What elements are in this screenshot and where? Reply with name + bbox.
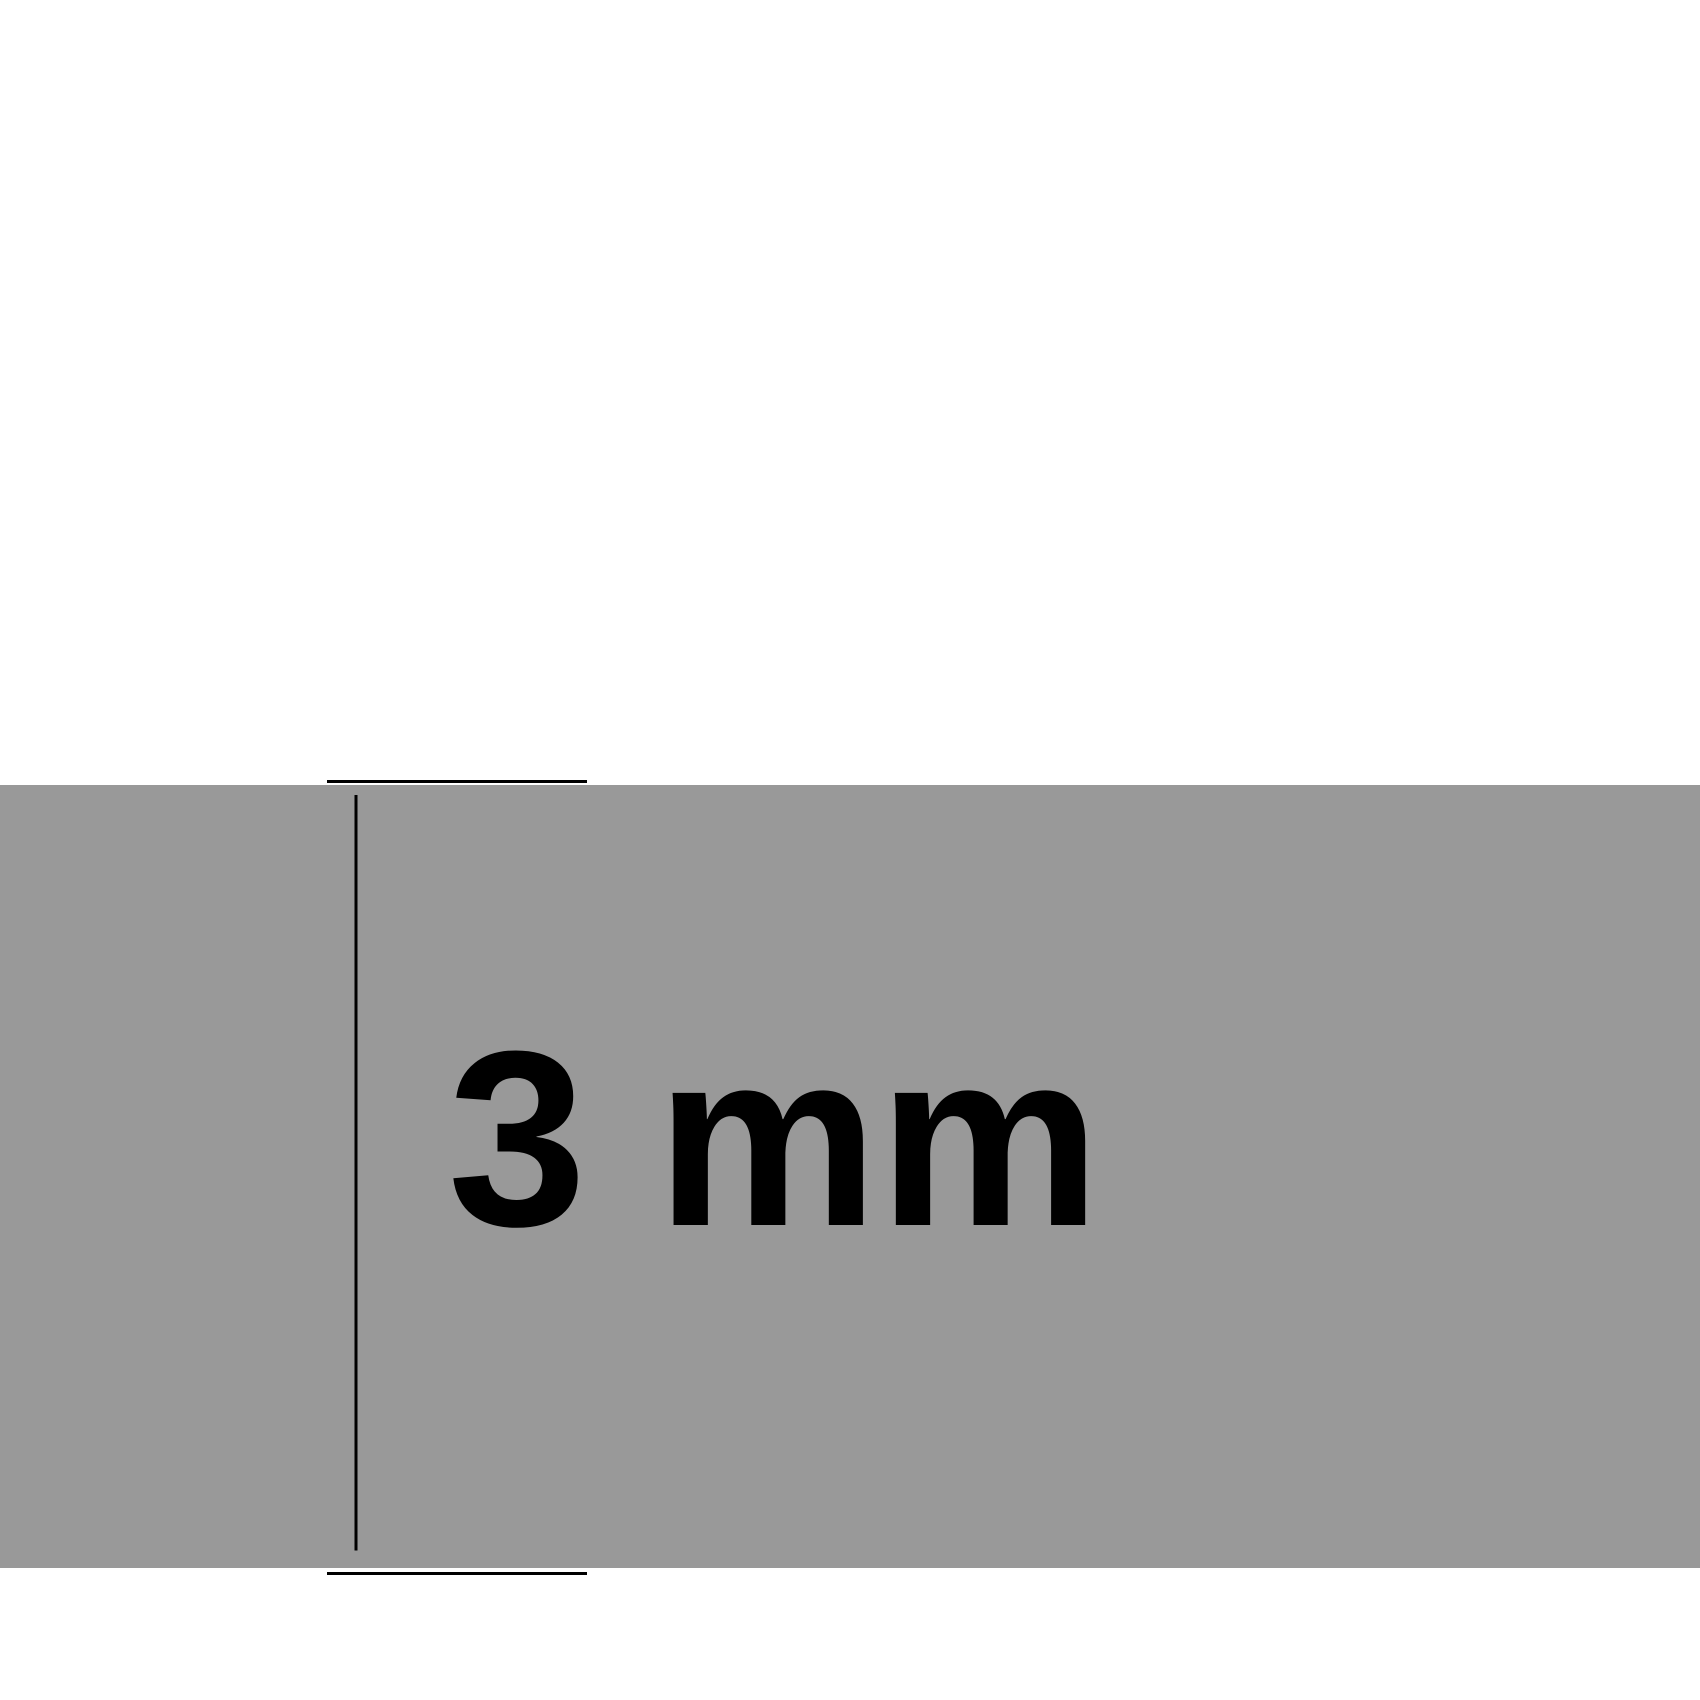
svg-text:3 mm: 3 mm <box>448 999 1101 1278</box>
